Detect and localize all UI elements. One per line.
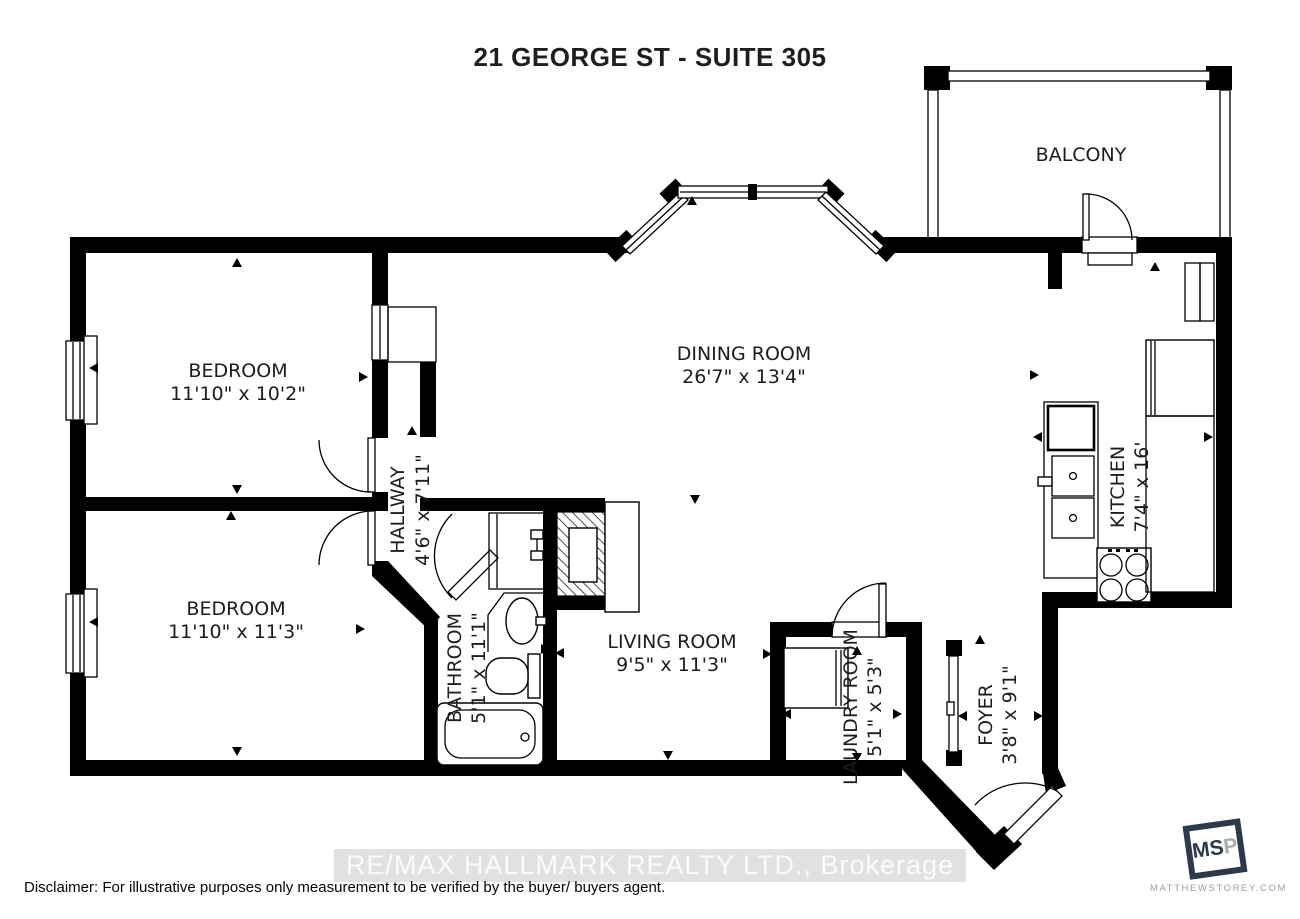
brokerage-watermark: RE/MAX HALLMARK REALTY LTD., Brokerage bbox=[334, 849, 966, 882]
balcony-rail-right bbox=[1220, 90, 1230, 238]
bedroom2-label: BEDROOM bbox=[186, 598, 285, 620]
dimension-arrow bbox=[1204, 432, 1213, 442]
disclaimer-text: Disclaimer: For illustrative purposes on… bbox=[24, 879, 665, 896]
bedroom1-label: BEDROOM bbox=[188, 360, 287, 382]
dimension-arrow bbox=[359, 372, 368, 382]
msp-logo-box: MSP bbox=[1183, 818, 1248, 880]
balcony-post-left bbox=[924, 66, 950, 90]
toilet bbox=[486, 654, 540, 698]
kitchen-label: KITCHEN bbox=[1107, 446, 1129, 528]
bedroom1-closet bbox=[372, 305, 436, 362]
kitchen-appliance bbox=[1048, 406, 1094, 450]
living-label: LIVING ROOM bbox=[607, 631, 736, 653]
bedroom1-dims: 11'10" x 10'2" bbox=[170, 383, 306, 405]
dimension-arrow bbox=[232, 747, 242, 756]
fireplace bbox=[557, 502, 639, 612]
walls bbox=[70, 179, 1232, 870]
dimension-arrow bbox=[226, 511, 236, 520]
dimension-arrow bbox=[1034, 711, 1043, 721]
dimension-arrow bbox=[663, 751, 673, 760]
firebox bbox=[569, 528, 597, 582]
balcony-label: BALCONY bbox=[1036, 144, 1127, 166]
balcony-rail-left bbox=[928, 90, 938, 238]
dimension-arrow bbox=[690, 495, 700, 504]
bathroom-closet bbox=[489, 513, 545, 589]
balcony-rail-top bbox=[948, 71, 1210, 81]
kitchen-sink bbox=[1038, 456, 1094, 538]
dimension-arrow bbox=[893, 709, 902, 719]
dimension-arrow bbox=[232, 258, 242, 267]
floor-plan-page: 21 GEORGE ST - SUITE 305 bbox=[0, 0, 1300, 919]
dimension-arrow bbox=[1030, 370, 1039, 380]
laundry-dims: 5'1" x 5'3" bbox=[864, 657, 886, 757]
hallway-label: HALLWAY bbox=[387, 466, 409, 554]
floor-plan-svg: BALCONY BEDROOM 11'10" x 10'2" BEDROOM 1… bbox=[0, 0, 1300, 919]
kitchen-pantry bbox=[1185, 263, 1214, 321]
bathroom-sink bbox=[488, 593, 546, 652]
stove bbox=[1097, 548, 1151, 602]
dimension-arrow bbox=[232, 485, 242, 494]
fridge bbox=[1146, 340, 1214, 416]
dimension-arrow bbox=[356, 624, 365, 634]
kitchen-dims: 7'4" x 16' bbox=[1131, 442, 1153, 533]
msp-logo-text-dark: MS bbox=[1191, 836, 1225, 863]
hearth bbox=[605, 502, 639, 612]
dining-label: DINING ROOM bbox=[677, 343, 812, 365]
washer bbox=[784, 648, 848, 708]
msp-logo-text-light: P bbox=[1222, 834, 1239, 859]
living-dims: 9'5" x 11'3" bbox=[616, 654, 728, 676]
bedroom2-door bbox=[319, 511, 375, 565]
balcony-door bbox=[1082, 194, 1137, 265]
bathroom-label: BATHROOM bbox=[444, 613, 466, 723]
dimension-arrow bbox=[407, 426, 417, 435]
foyer-closet-door bbox=[947, 656, 958, 752]
dining-dims: 26'7" x 13'4" bbox=[682, 366, 806, 388]
entry-wall-left bbox=[894, 760, 1000, 858]
dimension-arrow bbox=[1150, 262, 1160, 271]
bedroom2-window bbox=[66, 589, 97, 677]
foyer-label: FOYER bbox=[975, 684, 997, 746]
kitchen-counters bbox=[1038, 263, 1214, 602]
msp-logo: MSP MATTHEWSTOREY.COM bbox=[1150, 822, 1280, 894]
dimension-arrow bbox=[1033, 432, 1042, 442]
laundry-door bbox=[832, 583, 886, 637]
kitchen-right-counter bbox=[1146, 416, 1214, 592]
msp-site-text: MATTHEWSTOREY.COM bbox=[1150, 883, 1280, 894]
foyer-dims: 3'8" x 9'1" bbox=[999, 665, 1021, 765]
dimension-arrow bbox=[975, 635, 985, 644]
bathroom-dims: 5'1" x 11'1" bbox=[468, 612, 490, 724]
hallway-dims: 4'6" x 7'11" bbox=[412, 454, 434, 566]
bedroom2-dims: 11'10" x 11'3" bbox=[168, 621, 304, 643]
bedroom1-door bbox=[319, 438, 375, 492]
hallway-diagonal-wall bbox=[372, 561, 440, 630]
bedroom1-window bbox=[66, 336, 97, 424]
dimension-arrow bbox=[958, 711, 967, 721]
